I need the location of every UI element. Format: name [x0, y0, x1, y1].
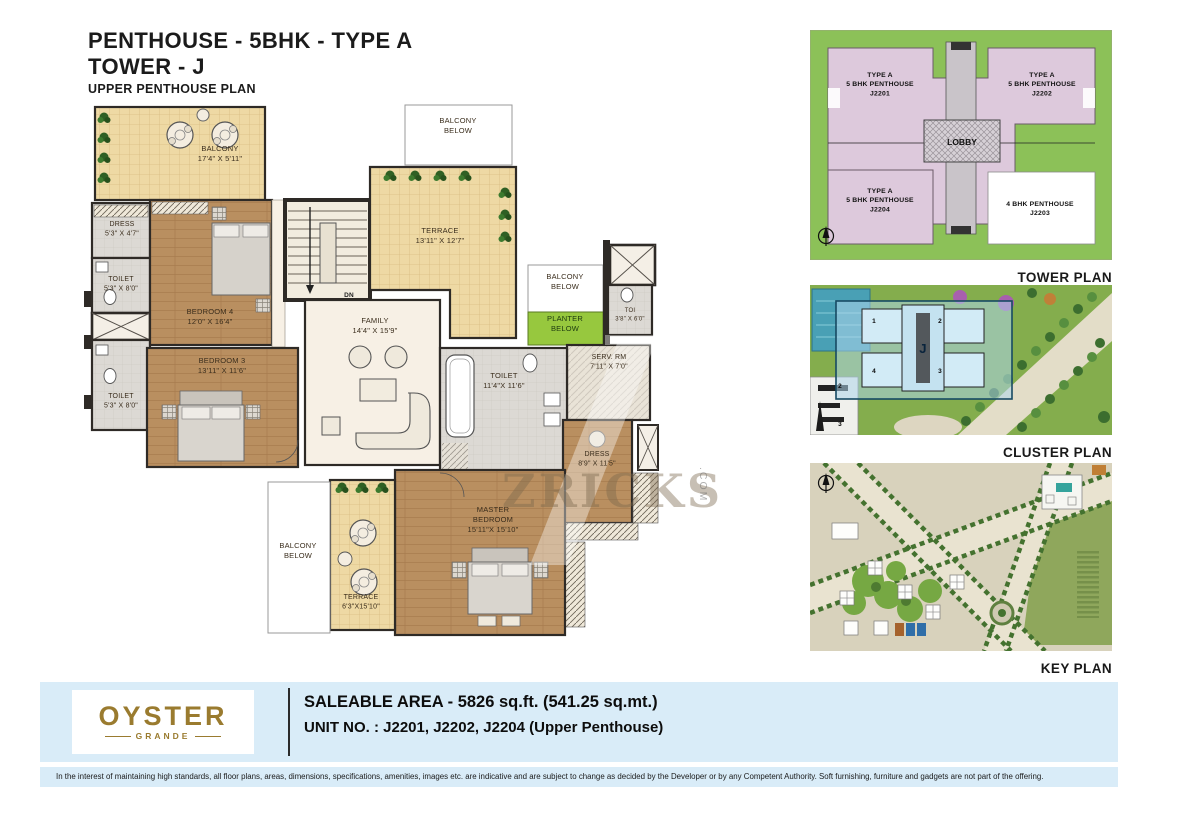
watermark-text: ZRICKS	[502, 464, 720, 518]
shower	[442, 443, 468, 471]
headboard	[472, 548, 528, 562]
footer-band: OYSTER GRANDE SALEABLE AREA - 5826 sq.ft…	[40, 682, 1118, 762]
wall-stub	[84, 335, 92, 349]
washbasin	[544, 393, 560, 406]
cluster-plan-caption: CLUSTER PLAN	[810, 445, 1112, 460]
room-toilet-big	[440, 348, 567, 473]
lobby-label: LOBBY	[947, 137, 977, 147]
unit-no-text: UNIT NO. : J2201, J2202, J2204 (Upper Pe…	[304, 719, 663, 736]
tower-plan: LOBBY TYPE A5 BHK PENTHOUSEJ2201TYPE A5 …	[810, 30, 1112, 260]
wall-stub	[84, 395, 92, 409]
disclaimer-text: In the interest of maintaining high stan…	[40, 767, 1118, 787]
balcony-tl-label: BALCONY17'4" X 5'11"	[198, 144, 243, 163]
staircase	[285, 200, 370, 300]
cluster-bldg-2-label: 2	[838, 383, 842, 390]
title-line2: TOWER - J	[88, 54, 413, 80]
cluster-wing-2-label: 2	[938, 318, 942, 325]
watermark-suffix: .COM	[697, 467, 709, 502]
bench	[478, 616, 496, 626]
footer-divider	[288, 688, 290, 756]
round-table	[350, 520, 376, 546]
round-table	[351, 569, 377, 595]
balcony-below-bl-label: BALCONYBELOW	[279, 541, 316, 560]
wall-stub	[84, 291, 92, 307]
wc	[523, 354, 537, 372]
cluster-bldg-3-label: 3	[838, 421, 842, 428]
room-toilet-lower	[92, 340, 150, 430]
cluster-wing-1-label: 1	[872, 318, 876, 325]
brand-logo: OYSTER GRANDE	[72, 690, 254, 754]
headboard	[180, 391, 242, 405]
brand-name: OYSTER	[98, 703, 227, 729]
floorplan: ZRICKS .COM BALCONY17'4" X 5'11"DRESS5'3…	[60, 95, 720, 660]
bedroom4-label: BEDROOM 412'0" X 16'4"	[187, 307, 234, 326]
tower-wing-4bhk	[988, 172, 1095, 244]
title-line3: UPPER PENTHOUSE PLAN	[88, 82, 413, 96]
cluster-wing-4-label: 4	[872, 368, 876, 375]
terrace-top-label: TERRACE13'11" X 12'7"	[416, 226, 465, 245]
balcony-below-top	[405, 105, 512, 165]
key-plan	[810, 463, 1112, 651]
washbasin	[96, 262, 108, 272]
title-line1: PENTHOUSE - 5BHK - TYPE A	[88, 28, 413, 54]
footer-text: SALEABLE AREA - 5826 sq.ft. (541.25 sq.m…	[304, 693, 663, 736]
lift-right	[610, 245, 655, 285]
armchair	[349, 346, 371, 368]
brochure-page: PENTHOUSE - 5BHK - TYPE A TOWER - J UPPE…	[0, 0, 1179, 837]
cluster-plan: J124323	[810, 285, 1112, 435]
planter-below-label: PLANTERBELOW	[547, 314, 583, 333]
page-title: PENTHOUSE - 5BHK - TYPE A TOWER - J UPPE…	[88, 28, 413, 96]
stool	[322, 417, 340, 435]
wc	[104, 369, 116, 384]
key-plan-caption: KEY PLAN	[810, 661, 1112, 676]
armchair	[385, 346, 407, 368]
washbasin	[544, 413, 560, 426]
round-table	[167, 122, 193, 148]
bench	[502, 616, 520, 626]
saleable-area-text: SALEABLE AREA - 5826 sq.ft. (541.25 sq.m…	[304, 693, 663, 712]
brand-subname: GRANDE	[100, 731, 227, 741]
tower-plan-panel: LOBBY TYPE A5 BHK PENTHOUSEJ2201TYPE A5 …	[810, 30, 1112, 285]
lift-left	[92, 313, 150, 340]
cluster-plan-panel: J124323 CLUSTER PLAN	[810, 285, 1112, 460]
coffee-table	[360, 379, 396, 401]
cluster-wing-3-label: 3	[938, 368, 942, 375]
tower-plan-caption: TOWER PLAN	[810, 270, 1112, 285]
bedroom3-label: BEDROOM 313'11" X 11'6"	[198, 356, 246, 375]
washbasin	[96, 345, 108, 355]
balcony-below-top-label: BALCONYBELOW	[439, 116, 476, 135]
cluster-tower-j-label: J	[919, 341, 926, 356]
dn-label: DN	[344, 292, 354, 299]
balcony-below-right-label: BALCONYBELOW	[546, 272, 583, 291]
wc	[621, 288, 633, 302]
key-plan-panel: KEY PLAN	[810, 463, 1112, 676]
